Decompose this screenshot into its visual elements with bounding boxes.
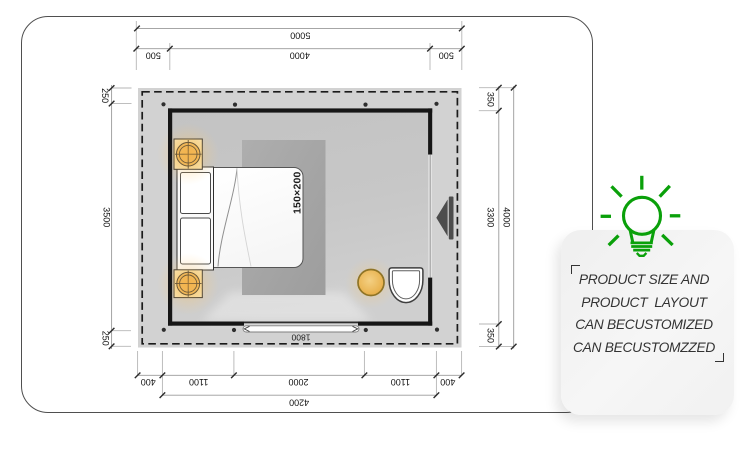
svg-text:250: 250	[100, 331, 110, 346]
svg-text:350: 350	[485, 328, 495, 343]
svg-text:4000: 4000	[290, 51, 310, 61]
svg-text:2000: 2000	[288, 377, 308, 387]
svg-text:400: 400	[440, 377, 455, 387]
svg-text:5000: 5000	[290, 30, 310, 40]
svg-text:4200: 4200	[289, 397, 309, 407]
svg-text:500: 500	[439, 51, 454, 61]
svg-text:500: 500	[146, 51, 161, 61]
svg-text:250: 250	[100, 88, 110, 103]
svg-text:3300: 3300	[486, 207, 496, 227]
svg-text:1100: 1100	[189, 377, 208, 387]
svg-text:150×200: 150×200	[292, 171, 304, 214]
svg-text:350: 350	[485, 92, 495, 107]
svg-text:4000: 4000	[501, 207, 511, 227]
svg-text:1800: 1800	[291, 333, 310, 343]
svg-text:3500: 3500	[102, 207, 112, 227]
svg-text:400: 400	[141, 377, 156, 387]
svg-text:1100: 1100	[391, 377, 410, 387]
